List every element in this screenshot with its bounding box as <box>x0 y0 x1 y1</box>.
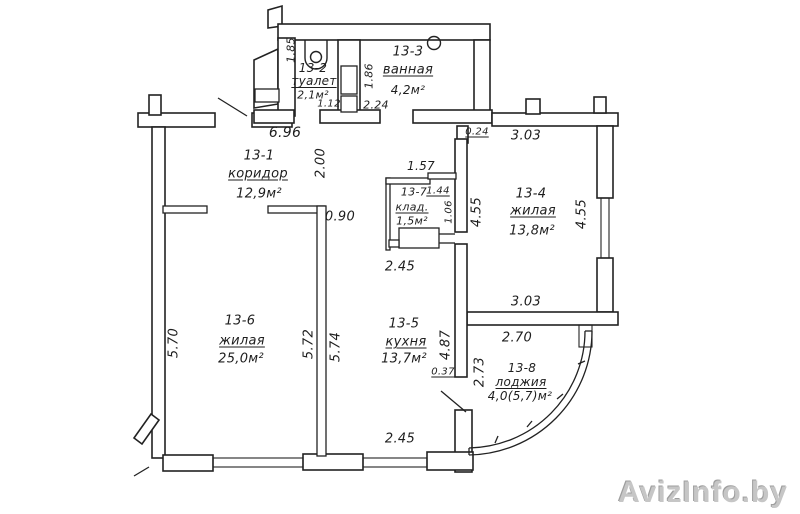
dim-kitchen-bottom-w: 2.45 <box>385 432 415 447</box>
dim-bath-h: 1.86 <box>363 63 376 89</box>
dim-room4-bottom-w: 3.03 <box>511 295 541 310</box>
room-13-8-area: 4,0(5,7)м² <box>488 389 552 403</box>
dim-loggia-left-h: 2.73 <box>473 357 488 387</box>
room-13-6-name: жилая <box>219 334 265 349</box>
room-13-3-area: 4,2м² <box>391 83 425 97</box>
dim-storage-top: 1.57 <box>407 159 435 173</box>
dim-room6-left-h: 5.70 <box>167 328 182 358</box>
room-13-4-name: жилая <box>510 204 556 219</box>
dim-corridor-nook: 0.90 <box>325 210 355 225</box>
room4-window <box>601 198 609 258</box>
entrance-door-leaf <box>218 98 247 116</box>
dim-kitchen-h: 4.87 <box>439 330 454 360</box>
dim-room6-right-h: 5.72 <box>302 329 317 359</box>
storage-door <box>399 228 439 248</box>
dim-top-right-small: 0.24 <box>465 127 488 138</box>
dim-corridor-w: 6.96 <box>269 125 301 141</box>
dim-room4-right-h: 4.55 <box>575 199 590 229</box>
room-13-8-id: 13-8 <box>508 361 536 375</box>
dim-storage-w: 1.44 <box>426 186 449 197</box>
room-13-5-id: 13-5 <box>389 317 420 332</box>
dim-bath-w: 2.24 <box>363 99 389 112</box>
dim-corridor-h: 2.00 <box>314 148 329 178</box>
kitchen-window <box>363 458 427 467</box>
room-13-3-id: 13-3 <box>393 45 424 60</box>
room-13-1-name: коридор <box>228 167 288 182</box>
room-13-3-name: ванная <box>383 63 433 78</box>
dim-toilet-h: 1.85 <box>285 37 298 63</box>
room-13-1-area: 12,9м² <box>236 187 282 202</box>
dim-toilet-door: 1.12 <box>317 99 340 110</box>
room-13-4-id: 13-4 <box>516 187 547 202</box>
dim-kitchen-pass: 0.37 <box>431 367 454 378</box>
room-13-2-name: туалет <box>291 74 336 88</box>
room-13-4-area: 13,8м² <box>509 224 555 239</box>
room-13-1-id: 13-1 <box>244 149 275 164</box>
floor-plan: 13-1 коридор 12,9м² 13-2 туалет 2,1м² 13… <box>0 0 800 514</box>
dim-top-right-w: 3.03 <box>511 129 541 144</box>
dim-kitchen-left-h: 5.74 <box>329 332 344 362</box>
room-13-8-name: лоджия <box>496 375 547 389</box>
dim-room4-left-h: 4.55 <box>470 197 485 227</box>
room-13-5-name: кухня <box>385 335 426 350</box>
dim-kitchen-top-w: 2.45 <box>385 260 415 275</box>
loggia-pass-leader <box>441 391 466 412</box>
room-13-7-name: клад. <box>395 201 428 214</box>
room6-window <box>213 458 303 467</box>
dim-storage-h: 1.06 <box>444 200 455 223</box>
door-lines <box>134 98 466 476</box>
room-13-7-id: 13-7 <box>401 186 427 199</box>
watermark: AvizInfo.by <box>618 476 788 510</box>
room-13-6-id: 13-6 <box>225 314 256 329</box>
room-13-6-area: 25,0м² <box>218 352 264 367</box>
corner-tick <box>134 467 149 476</box>
room-13-5-area: 13,7м² <box>381 352 427 367</box>
room-13-2-id: 13-2 <box>299 61 327 75</box>
dim-loggia-top-w: 2.70 <box>502 331 532 346</box>
room-13-7-area: 1,5м² <box>396 215 428 228</box>
